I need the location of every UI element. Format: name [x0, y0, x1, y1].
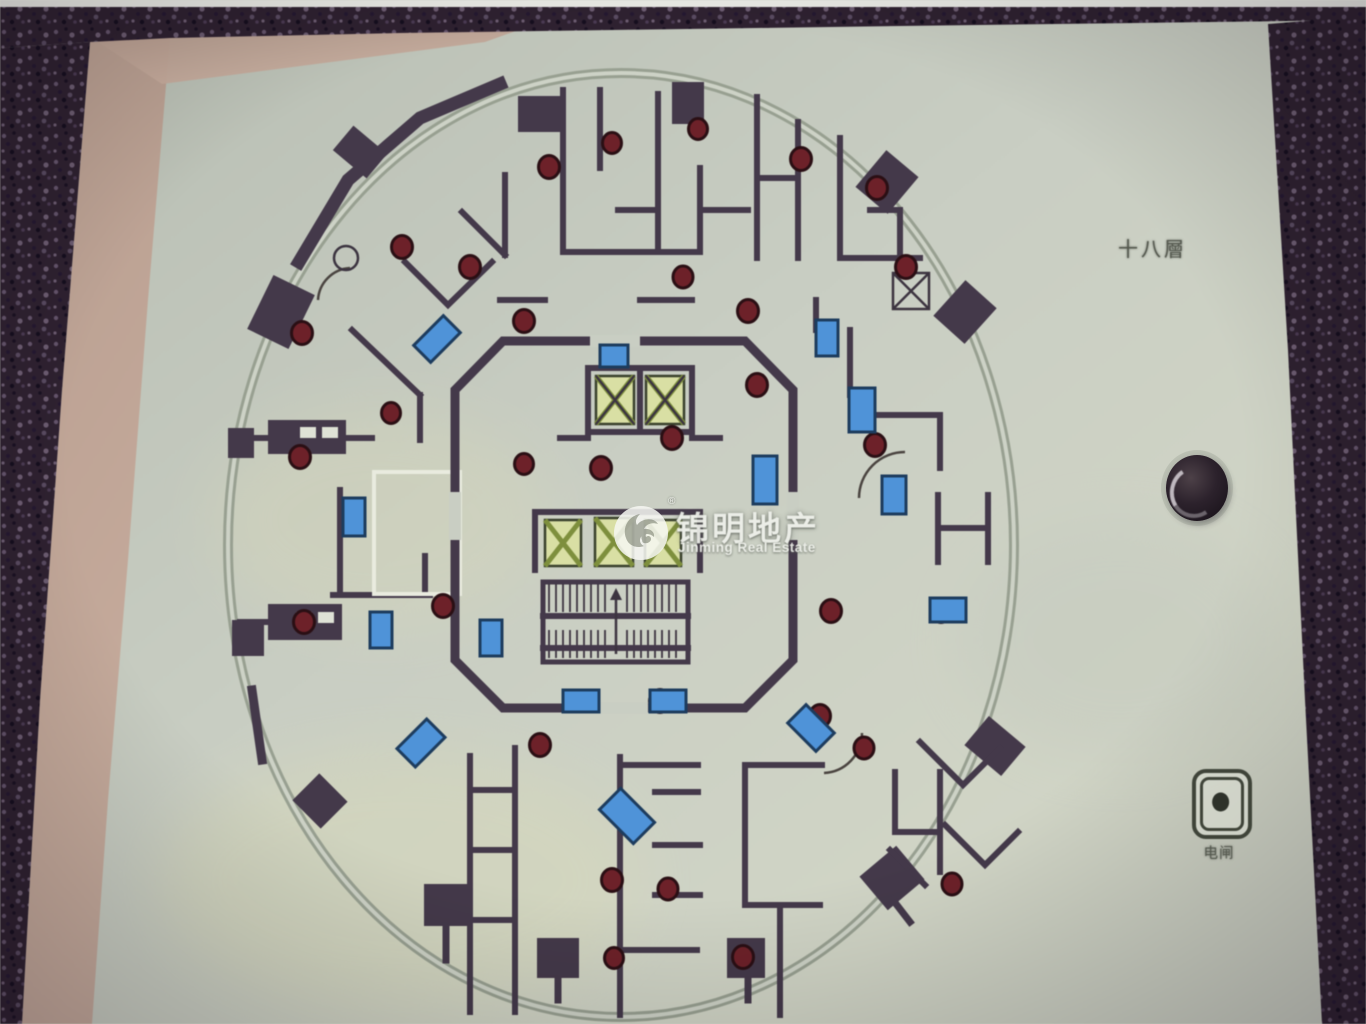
outlet-label: 电闸 — [1186, 842, 1252, 863]
watermark: ® 锦明地产 Jinming Real Estate — [612, 496, 822, 566]
registered-mark: ® — [668, 496, 675, 507]
power-outlet-dot — [1212, 793, 1229, 812]
floor-number-label: 十八層 — [1118, 233, 1228, 262]
floor-plan-sign-photo: 十八層 ® 锦明地产 Jinming Real Estate 电闸 — [0, 0, 1366, 1024]
power-outlet-icon — [1192, 769, 1252, 839]
power-outlet-inner-ring — [1200, 777, 1244, 831]
jinming-logo-icon — [612, 504, 670, 562]
watermark-brand-en: Jinming Real Estate — [678, 540, 828, 555]
panel-hole — [1166, 455, 1228, 521]
